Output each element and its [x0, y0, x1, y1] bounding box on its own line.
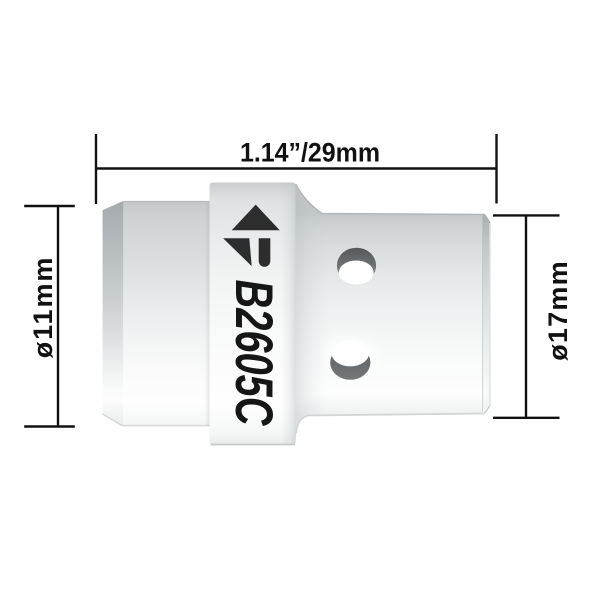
svg-text:ø17mm: ø17mm: [543, 260, 573, 361]
svg-text:1.14”/29mm: 1.14”/29mm: [240, 138, 380, 168]
svg-text:B2605C: B2605C: [224, 280, 283, 427]
svg-text:ø11mm: ø11mm: [28, 256, 58, 359]
